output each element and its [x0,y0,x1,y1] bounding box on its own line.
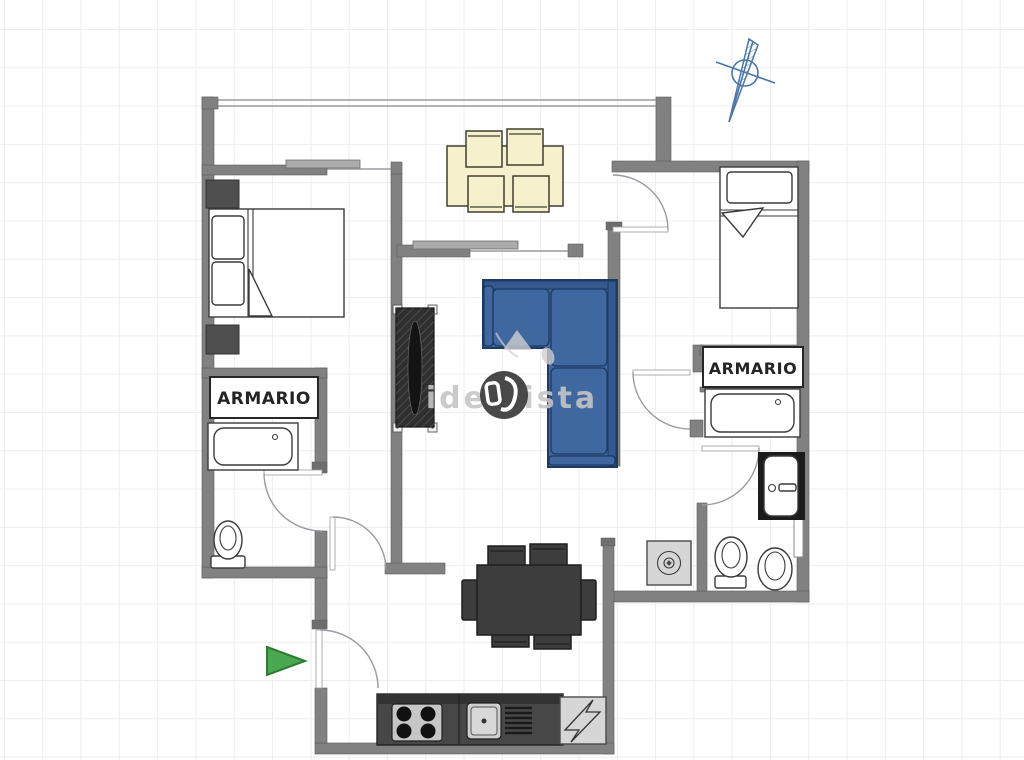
table-top [477,565,581,635]
wall-living-divider-cap [568,244,583,257]
door-arc-bath1 [264,473,322,531]
wall-bedroom1-top-post [391,162,402,174]
door-arc-hall-kitchen [333,517,386,570]
wardrobe-right-label: ARMARIO [709,359,797,378]
sofa-backrest-top [484,281,616,289]
pillow [212,216,244,259]
window-right-wall [794,519,803,557]
washbasin [758,452,805,520]
floor-plan-svg: ARMARIO [0,0,1024,760]
door-arc-bath2 [702,448,759,505]
bidet [758,548,792,590]
wall-top-right-post [656,97,671,168]
compass-icon [716,39,775,122]
bathtub-right [705,389,800,437]
dining-chair [468,176,504,212]
door-arc-entrance [320,630,378,688]
door-leaf-bath1 [264,470,322,475]
wardrobe-left-label: ARMARIO [217,389,311,409]
wall-hall2-stub [690,420,703,437]
sliding-door-living [413,241,518,249]
nightstand-top [206,180,239,208]
wall-hall-left-mid [315,531,327,628]
wardrobe-left: ARMARIO [210,377,318,418]
door-leaf-hall2 [633,370,690,375]
sofa-armrest [484,286,493,346]
washing-machine [647,541,691,585]
entrance-arrow-icon [267,647,305,675]
door-arc-hall2 [633,372,690,429]
bathtub-left [208,423,298,470]
wall-kitchen-top [385,563,445,574]
stove [392,704,442,741]
faucet [779,484,796,491]
pillow [727,172,792,203]
wall-bath2-divider [697,503,707,591]
wardrobe-right: ARMARIO [703,347,803,387]
fridge [560,697,606,744]
wall-bath2-bottom [608,591,809,602]
window-top [214,100,657,106]
pillow [212,262,244,305]
wall-cap-kitchen-right [601,538,615,546]
toilet-right [715,537,747,588]
door-leaf-hall-kitchen [330,517,335,570]
dining-chair [466,131,502,167]
sofa-backrest-right [608,281,616,466]
sofa-cushion [551,289,607,366]
wall-hall-left-lower [315,688,327,743]
nightstand-bottom [206,325,239,354]
door-leaf-bath2 [702,446,759,451]
sofa-armrest [549,456,615,465]
dining-table-dark [462,544,596,649]
wall-cap-entrance-top [312,620,327,629]
wall-top-left-corner [202,97,218,109]
dining-table-light [447,129,563,212]
dining-chair [507,129,543,165]
floor-plan-canvas: ARMARIO [0,0,1024,760]
toilet-left [211,521,245,568]
sliding-door-bedroom1 [286,160,360,168]
door-leaf-entrance [316,630,322,688]
double-bed [209,209,344,317]
watermark-logo-icon [480,371,528,419]
dining-chair [513,176,549,212]
single-bed [720,167,798,308]
door-leaf-bedroom2 [613,227,668,232]
kitchen-counter [377,694,563,745]
